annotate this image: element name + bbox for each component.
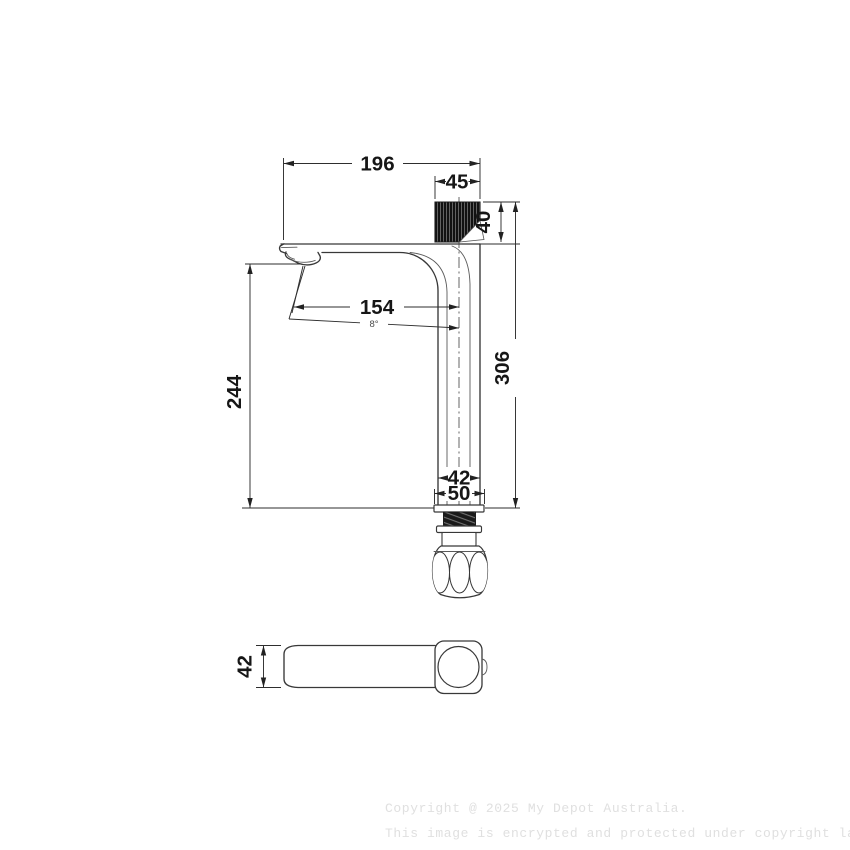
nut-neck	[442, 533, 476, 547]
body-plan-circle	[438, 647, 479, 688]
faucet-dimension-drawing: 196 45 40 306 244	[0, 0, 850, 850]
dim-label-42-plan: 42	[234, 655, 257, 678]
dimension-handle-width-45: 45	[435, 171, 480, 200]
dim-label-196: 196	[360, 153, 394, 176]
dim-label-244: 244	[223, 374, 246, 409]
plan-side-tab	[482, 659, 487, 675]
spout-underside	[322, 253, 438, 506]
dim-label-8deg: 8°	[369, 319, 378, 330]
dimension-spout-reach-154: 154	[289, 266, 459, 319]
dimension-base-width-50: 50	[435, 482, 485, 505]
front-view: 196 45 40 306 244	[223, 153, 520, 598]
technical-drawing-sheet: 196 45 40 306 244	[0, 0, 850, 850]
dimension-overall-height-306: 306	[491, 202, 518, 508]
dim-label-50: 50	[448, 482, 471, 505]
dimension-spout-angle-8deg: 8°	[289, 319, 459, 331]
base-assembly	[431, 505, 489, 598]
dimension-outlet-height-244: 244	[223, 264, 302, 508]
base-plate	[434, 505, 484, 512]
body-inner-line-left	[410, 253, 447, 506]
dim-label-40: 40	[472, 211, 495, 234]
bottom-view: 42	[234, 641, 488, 694]
watermark-line1: Copyright @ 2025 My Depot Australia.	[385, 801, 687, 816]
nozzle-outer-lip	[285, 252, 320, 265]
threaded-shank	[444, 512, 476, 526]
nut-grip-ovals	[431, 552, 489, 593]
dim-label-154: 154	[360, 296, 395, 319]
nozzle-inner-lip	[290, 260, 315, 263]
dim-label-306: 306	[491, 351, 514, 385]
dimension-spout-depth-42: 42	[234, 646, 282, 688]
dim-label-45: 45	[446, 171, 469, 194]
watermark-line2: This image is encrypted and protected un…	[385, 826, 850, 841]
spout-plan-outline	[284, 646, 435, 688]
washer	[437, 526, 482, 533]
watermark: Copyright @ 2025 My Depot Australia. Thi…	[385, 801, 850, 841]
